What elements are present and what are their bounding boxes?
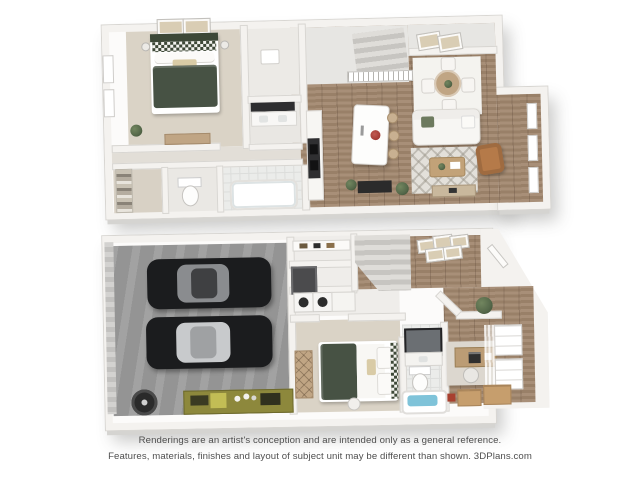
car-1-roof [191, 268, 218, 298]
bathroom1-sink [419, 356, 428, 362]
bathroom1-vanity [405, 352, 443, 367]
upper-floor-plan [102, 9, 551, 226]
car-2-roof [190, 326, 217, 358]
bed-upper-checker-shams [152, 41, 216, 53]
sofa-pillow-green [421, 116, 434, 127]
bedroom2-window-1 [102, 55, 114, 83]
moving-box-2 [483, 384, 511, 405]
workbench-tool-chest [210, 393, 226, 408]
workbench-dark-item-2 [260, 393, 280, 405]
closet-cabinet [260, 49, 279, 64]
moving-box-1 [457, 389, 481, 406]
island-flowers [370, 130, 380, 140]
oven-door-2 [310, 160, 318, 170]
living-window-1 [527, 103, 538, 129]
office-curtains [484, 325, 495, 387]
coffee-table-book [450, 162, 460, 169]
dryer [312, 292, 332, 312]
entry-bench-decor [449, 188, 457, 193]
entry-bench [432, 184, 476, 197]
bed-lower [318, 341, 398, 403]
kitchen-island [351, 104, 390, 166]
workbench-paint-can-3 [251, 395, 256, 400]
vanity-counter [251, 111, 297, 127]
linen-shelves [115, 169, 133, 213]
bed-upper-duvet [153, 65, 218, 109]
kitchen-range [308, 138, 321, 178]
office-window-1 [494, 324, 523, 356]
coffee-table [429, 157, 465, 178]
utility-door [291, 266, 318, 294]
bathtub-lower [401, 390, 447, 415]
bed-upper [150, 33, 220, 115]
bedroom2-bench [164, 133, 210, 145]
bed-lower-accent-pillow [367, 359, 376, 375]
floorplan-rendering-page: Renderings are an artist's conception an… [0, 0, 640, 480]
wall-vanity-bottom [249, 143, 303, 151]
car-1 [147, 257, 272, 309]
wall-bedroom1-top-a [290, 314, 320, 323]
stairs-upper [352, 27, 409, 75]
dining-chair-right [461, 77, 475, 92]
laundry-cabinet [331, 291, 355, 311]
bed-lower-checker-headboard [390, 343, 398, 399]
shelf-item-3 [326, 243, 334, 248]
sofa [412, 108, 481, 146]
washer-door [298, 297, 308, 307]
stair-railing [347, 70, 413, 83]
dining-chair-left [421, 78, 435, 93]
vanity-sink-2 [278, 115, 287, 122]
armchair-leather [475, 142, 506, 176]
gallery-frame-5 [444, 246, 462, 260]
laptop [469, 352, 481, 363]
disclaimer: Renderings are an artist's conception an… [0, 433, 640, 464]
disclaimer-line2: Features, materials, finishes and layout… [0, 449, 640, 465]
coffee-table-plant [438, 163, 445, 170]
wall-wc-right [216, 166, 224, 213]
workbench-paint-can-1 [234, 396, 240, 402]
red-toolbox [447, 394, 455, 402]
vanity-sink-1 [259, 115, 268, 122]
living-window-3 [528, 167, 539, 193]
bathtub-upper [230, 179, 299, 211]
sofa-pillow-white [461, 115, 475, 128]
workbench [183, 389, 293, 415]
dryer-door [317, 297, 327, 307]
disclaimer-line1: Renderings are an artist's conception an… [0, 433, 640, 449]
oven-door-1 [310, 144, 318, 154]
bedroom1-dresser [294, 350, 313, 398]
washer [293, 292, 313, 312]
living-window-2 [528, 135, 539, 161]
wall-bedroom1-top-b [348, 312, 406, 321]
bedroom2-window-2 [103, 89, 115, 117]
dining-centerpiece [444, 80, 452, 88]
workbench-dark-item-1 [190, 395, 208, 405]
workbench-paint-can-2 [243, 393, 249, 399]
media-console-black [358, 180, 392, 193]
bed-lower-duvet [320, 343, 357, 400]
gallery-frame-4 [426, 248, 445, 262]
shop-fan-hub [141, 399, 147, 405]
shelf-item-1 [299, 243, 307, 248]
bathtub-water [407, 395, 437, 407]
storage-shelf [292, 240, 350, 252]
car-2 [146, 315, 273, 369]
wall-wc-left [161, 167, 169, 214]
shelf-item-2 [313, 243, 320, 248]
lower-floor-plan [102, 222, 550, 428]
island-faucet [360, 125, 363, 135]
